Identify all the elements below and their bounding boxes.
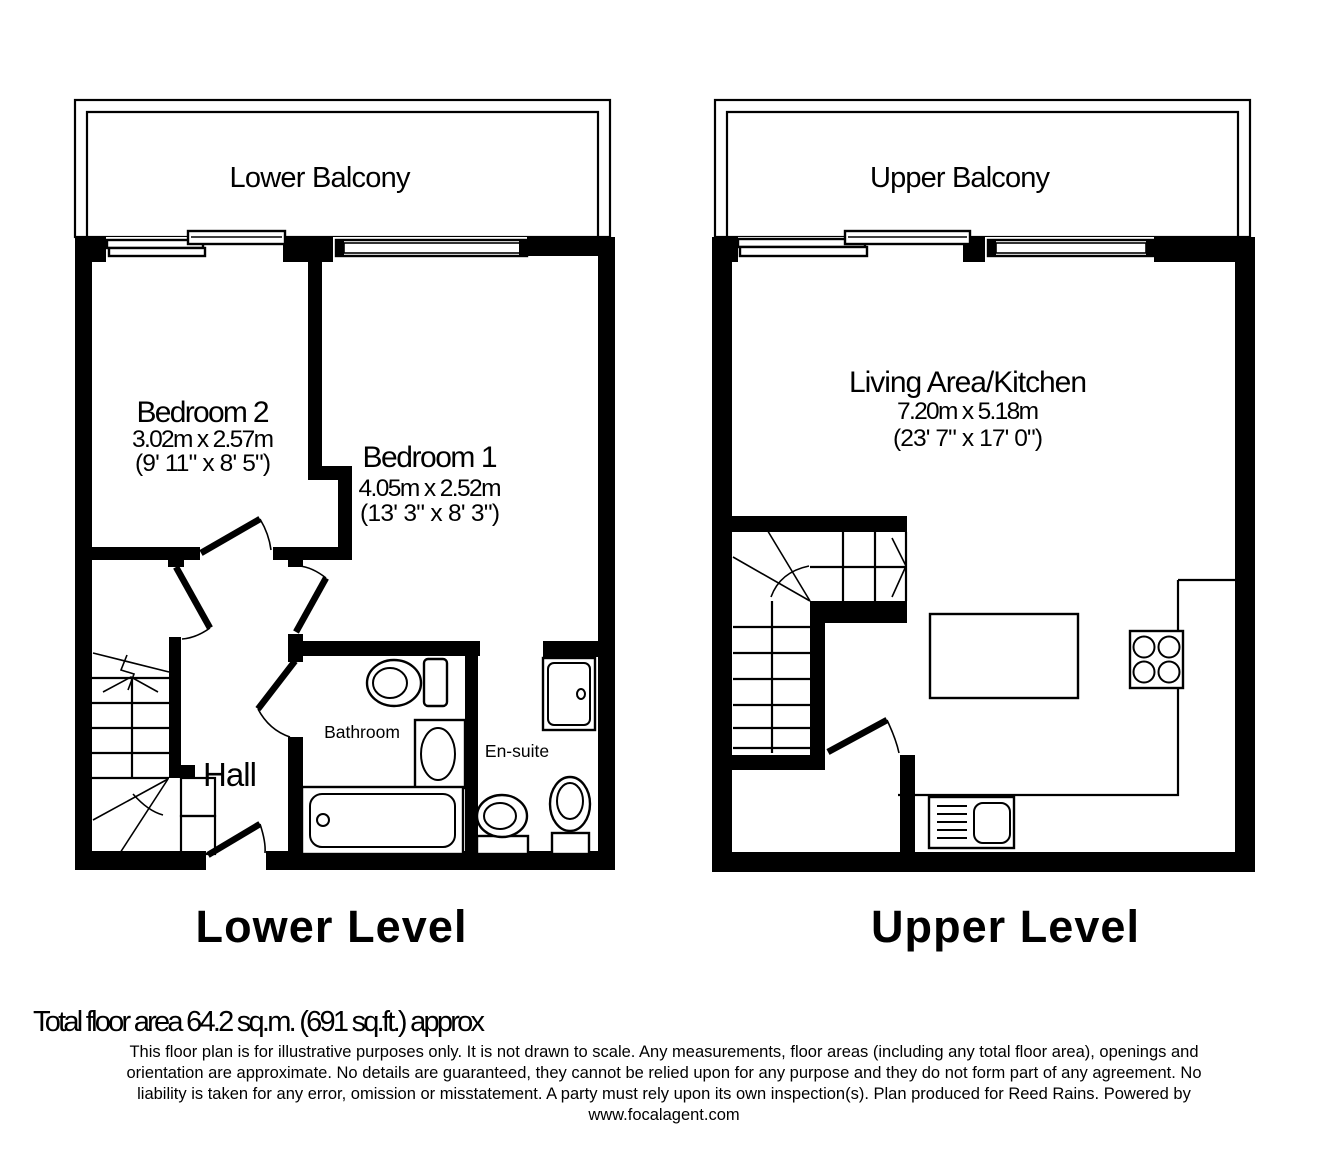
- hob-icon: [1130, 631, 1183, 688]
- living-metric: 7.20m x 5.18m: [897, 398, 1039, 425]
- toilet-icon: [367, 659, 447, 706]
- sink-icon: [415, 720, 465, 788]
- living-name: Living Area/Kitchen: [849, 366, 1087, 399]
- disclaimer-line: www.focalagent.com: [587, 1106, 739, 1124]
- lower-balcony-label: Lower Balcony: [230, 162, 412, 194]
- kitchen-sink-icon: [929, 797, 1014, 848]
- floorplan-page: Lower Balcony: [0, 0, 1328, 1151]
- disclaimer-line: liability is taken for any error, omissi…: [137, 1085, 1191, 1103]
- hall-label: Hall: [203, 756, 257, 793]
- floorplan-canvas: Lower Balcony: [0, 0, 1328, 1151]
- window-icon: [988, 240, 1154, 256]
- island-icon: [930, 614, 1078, 698]
- total-area-text: Total floor area 64.2 sq.m. (691 sq.ft.)…: [33, 1006, 486, 1038]
- upper-balcony-label: Upper Balcony: [870, 162, 1051, 194]
- background: [0, 0, 1328, 1151]
- disclaimer-line: This floor plan is for illustrative purp…: [129, 1043, 1198, 1061]
- bedroom1-imperial: (13' 3" x 8' 3"): [360, 500, 500, 527]
- bedroom2-name: Bedroom 2: [137, 396, 270, 429]
- upper-level-title: Upper Level: [871, 901, 1139, 952]
- sink-icon: [477, 795, 528, 854]
- toilet-icon: [550, 777, 590, 854]
- bedroom2-metric: 3.02m x 2.57m: [132, 426, 274, 453]
- window-icon: [336, 240, 527, 256]
- bedroom1-name: Bedroom 1: [363, 441, 498, 474]
- shower-icon: [543, 658, 595, 730]
- bathroom-label: Bathroom: [324, 722, 400, 742]
- bedroom2-imperial: (9' 11" x 8' 5"): [135, 450, 271, 477]
- disclaimer-line: orientation are approximate. No details …: [126, 1064, 1201, 1082]
- bath-icon: [302, 787, 463, 854]
- ensuite-label: En-suite: [485, 741, 549, 761]
- bedroom1-metric: 4.05m x 2.52m: [359, 475, 502, 502]
- lower-level-title: Lower Level: [196, 901, 467, 952]
- living-imperial: (23' 7" x 17' 0"): [893, 425, 1043, 452]
